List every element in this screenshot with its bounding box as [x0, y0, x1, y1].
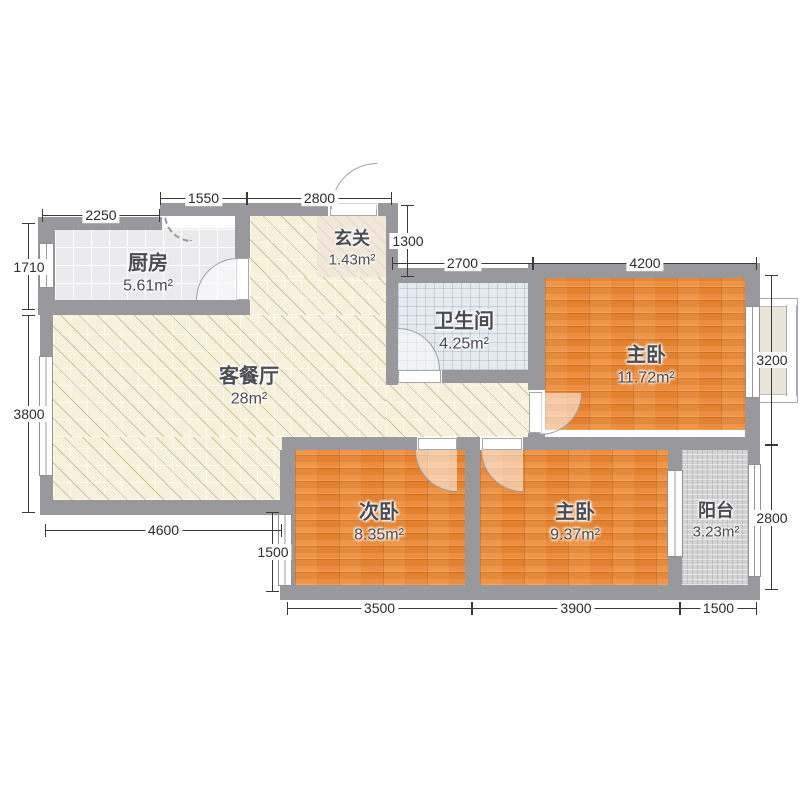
second-bedroom-door-leaf	[418, 438, 457, 450]
balcony-door	[667, 470, 683, 557]
room-label-balcony: 阳台 3.23m²	[693, 500, 740, 543]
wall	[280, 585, 760, 600]
dimension-label: 1500	[254, 544, 291, 560]
dimension-top_master: 4200	[533, 263, 757, 264]
wall	[465, 450, 480, 585]
master-bottom-door-leaf	[482, 438, 522, 450]
dimension-label: 1710	[10, 259, 47, 275]
dimension-label: 1500	[700, 600, 737, 616]
dimension-label: 4200	[626, 255, 663, 271]
room-area: 1.43m²	[329, 251, 376, 271]
room-name: 厨房	[123, 251, 173, 277]
room-area: 4.25m²	[434, 335, 494, 356]
dimension-top_entry: 2800	[247, 198, 392, 199]
dimension-label: 1300	[389, 233, 426, 249]
wall	[386, 370, 398, 383]
dimension-label: 3200	[753, 352, 790, 368]
room-name: 客餐厅	[219, 364, 279, 390]
dimension-label: 3900	[557, 600, 594, 616]
dimension-bottom_living: 4600	[45, 530, 282, 531]
bay-window-frame	[786, 305, 797, 396]
room-name: 主卧	[550, 500, 600, 526]
room-area: 8.35m²	[354, 526, 404, 547]
wall	[38, 300, 250, 315]
dimension-bottom_balcony: 1500	[680, 608, 757, 609]
room-name: 阳台	[693, 500, 740, 523]
bay-window	[757, 298, 798, 403]
living-floor	[250, 277, 386, 315]
living-floor	[250, 216, 317, 277]
wall	[235, 203, 250, 258]
room-area: 3.23m²	[693, 523, 740, 543]
dimension-label: 2800	[753, 510, 790, 526]
room-label-master-top: 主卧 11.72m²	[617, 343, 675, 390]
wall	[523, 437, 760, 450]
wall	[457, 437, 480, 450]
living-floor	[53, 437, 282, 500]
dimension-right_master: 3200	[771, 275, 772, 445]
bathroom-door-leaf	[398, 370, 441, 383]
room-label-bathroom: 卫生间 4.25m²	[434, 309, 494, 356]
dimension-label: 3500	[361, 600, 398, 616]
room-area: 28m²	[219, 390, 279, 411]
room-name: 卫生间	[434, 309, 494, 335]
room-name: 主卧	[617, 343, 675, 369]
dimension-label: 2800	[301, 190, 338, 206]
room-label-master-bottom: 主卧 9.37m²	[550, 500, 600, 547]
dimension-bottom_second: 3500	[287, 608, 472, 609]
dimension-label: 1550	[185, 190, 222, 206]
dimension-top_mid: 1550	[160, 198, 247, 199]
room-label-entry: 玄关 1.43m²	[329, 228, 376, 271]
floor-plan: 厨房 5.61m² 玄关 1.43m² 客餐厅 28m² 卫生间 4.25m² …	[0, 0, 800, 800]
dimension-label: 2700	[444, 255, 481, 271]
room-area: 11.72m²	[617, 369, 675, 390]
dimension-side_second: 1500	[272, 512, 273, 592]
room-name: 玄关	[329, 228, 376, 251]
dimension-label: 3800	[10, 406, 47, 422]
room-name: 次卧	[354, 500, 404, 526]
dimension-bottom_master: 3900	[472, 608, 680, 609]
room-area: 9.37m²	[550, 526, 600, 547]
dimension-left_kitchen: 1710	[28, 223, 29, 310]
dimension-left_living: 3800	[28, 315, 29, 513]
wall	[386, 203, 398, 385]
wall	[40, 500, 295, 515]
dimension-label: 2250	[82, 207, 119, 223]
room-label-living: 客餐厅 28m²	[219, 364, 279, 411]
wall	[442, 370, 533, 383]
dimension-label: 4600	[145, 522, 182, 538]
hallway-floor	[386, 383, 530, 437]
dimension-entry_depth: 1300	[407, 205, 408, 277]
dimension-top_bath: 2700	[392, 263, 533, 264]
wall	[282, 437, 417, 450]
room-label-kitchen: 厨房 5.61m²	[123, 251, 173, 298]
dimension-right_balcony: 2800	[771, 445, 772, 590]
room-label-second: 次卧 8.35m²	[354, 500, 404, 547]
dimension-top_kitchen: 2250	[42, 215, 160, 216]
room-area: 5.61m²	[123, 277, 173, 298]
wall	[528, 263, 545, 390]
